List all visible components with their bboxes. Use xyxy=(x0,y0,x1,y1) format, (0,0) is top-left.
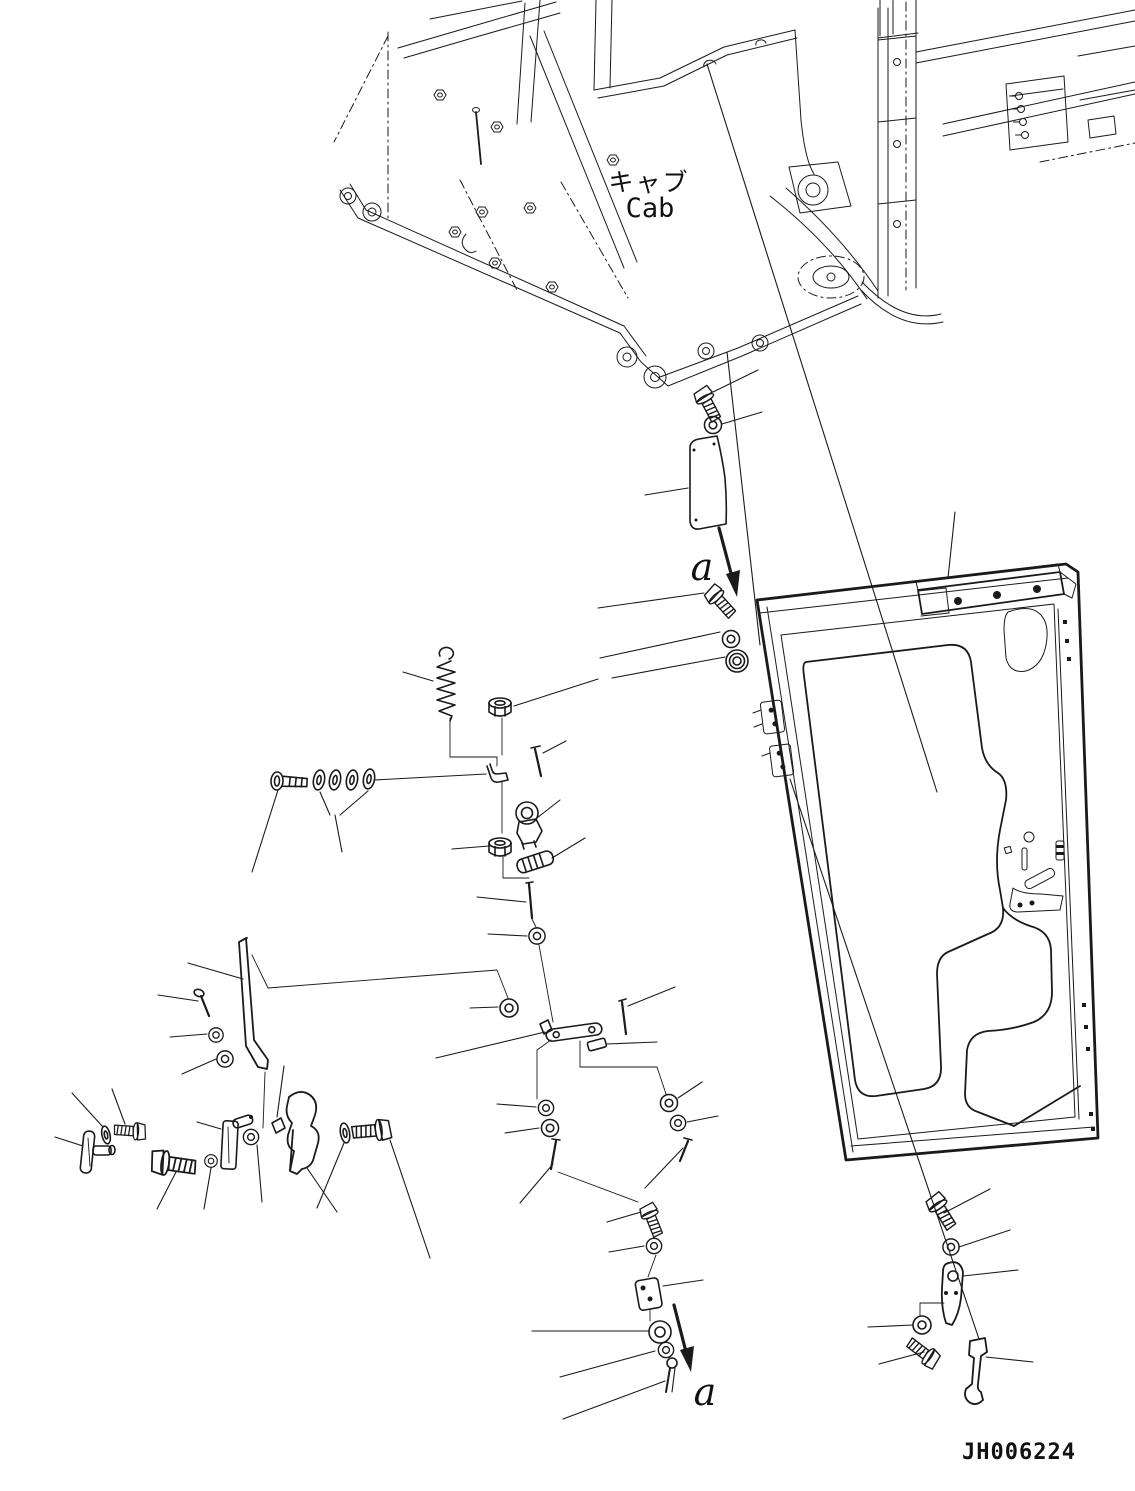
section-marker-upper: a xyxy=(691,545,714,589)
pin-icon xyxy=(551,1139,560,1169)
bolt-head-icon xyxy=(489,258,501,268)
bolt-head-icon xyxy=(476,207,488,217)
washer-icon xyxy=(913,1316,931,1334)
washer-icon xyxy=(538,1100,553,1115)
bolt-icon xyxy=(351,1119,392,1143)
exploded-parts-diagram: キャブ Cab xyxy=(0,0,1135,1491)
washer-icon xyxy=(541,1119,558,1136)
door-top-rail xyxy=(916,564,1076,616)
shield-plate-icon xyxy=(690,436,726,529)
bolt-icon xyxy=(149,1149,197,1179)
washer-icon xyxy=(649,1321,671,1343)
pin-icon xyxy=(531,746,541,776)
spring-icon xyxy=(437,647,455,721)
bracket-icon xyxy=(221,1114,254,1169)
bolt-head-icon xyxy=(607,155,619,165)
washer-icon xyxy=(722,630,739,647)
cab-label-english: Cab xyxy=(626,193,675,224)
exploded-parts xyxy=(80,385,987,1404)
bolt-head-icon xyxy=(524,203,536,213)
washer-icon xyxy=(217,1051,233,1067)
pin-icon xyxy=(526,882,533,918)
door-edge-bolts xyxy=(1063,620,1095,1131)
washer-icon xyxy=(670,1115,685,1130)
hinge-arm-icon xyxy=(942,1262,963,1325)
washer-icon xyxy=(205,1155,218,1168)
washer-icon xyxy=(943,1239,959,1255)
washer-icon xyxy=(100,1125,112,1144)
cab-frame-drawing xyxy=(334,0,1135,388)
pin-icon xyxy=(193,988,209,1016)
clip-icon xyxy=(487,764,508,782)
section-marker-lower: a xyxy=(694,1370,717,1414)
roller-icon xyxy=(587,1038,607,1051)
washer-set-icon xyxy=(312,768,376,791)
washer-icon xyxy=(704,416,721,433)
washer-icon xyxy=(658,1342,673,1357)
hook-latch-icon xyxy=(965,1338,987,1404)
arrow-head-icon xyxy=(680,1346,694,1372)
section-arrow-upper xyxy=(719,528,740,597)
leader-lines xyxy=(55,370,1033,1419)
washer-icon xyxy=(529,928,545,944)
parts-diagram-page: キャブ Cab xyxy=(0,0,1135,1491)
bolt-head-icon xyxy=(546,282,558,292)
cab-door-drawing xyxy=(753,564,1098,1160)
bolt-icon xyxy=(113,1121,146,1140)
round-head-bolt-icon xyxy=(271,772,308,792)
washer-icon xyxy=(243,1129,258,1144)
washer-icon xyxy=(660,1094,677,1111)
bolt-head-icon xyxy=(434,90,446,100)
bolt-icon xyxy=(924,1191,960,1233)
bolt-head-icon xyxy=(449,227,461,237)
door-latch-icon xyxy=(1004,832,1064,912)
ball-stud-icon xyxy=(516,802,542,849)
bolt-head-icon xyxy=(491,122,503,132)
link-icon xyxy=(540,1020,603,1042)
hex-nut-icon xyxy=(489,838,511,856)
cotter-pin-icon xyxy=(666,1358,677,1392)
washer-icon xyxy=(339,1122,351,1143)
drawing-number: JH006224 xyxy=(962,1440,1076,1465)
washer-icon xyxy=(209,1028,223,1042)
bolt-icon xyxy=(638,1202,667,1239)
hinge-bracket-icon xyxy=(635,1277,663,1311)
striker-icon xyxy=(287,1092,319,1174)
bushing-icon xyxy=(726,650,748,672)
screw-icon xyxy=(1014,119,1027,126)
washer-icon xyxy=(500,999,518,1017)
clip-icon xyxy=(272,1118,285,1133)
pin-icon xyxy=(619,999,626,1034)
arrow-head-icon xyxy=(726,570,740,597)
screw-icon xyxy=(1010,93,1023,100)
door-hinge-icon xyxy=(753,700,785,734)
washer-icon xyxy=(646,1238,661,1253)
knurled-sleeve-icon xyxy=(515,850,555,875)
hex-nut-icon xyxy=(489,698,511,716)
screw-icon xyxy=(1016,132,1029,139)
door-outline xyxy=(757,564,1098,1160)
